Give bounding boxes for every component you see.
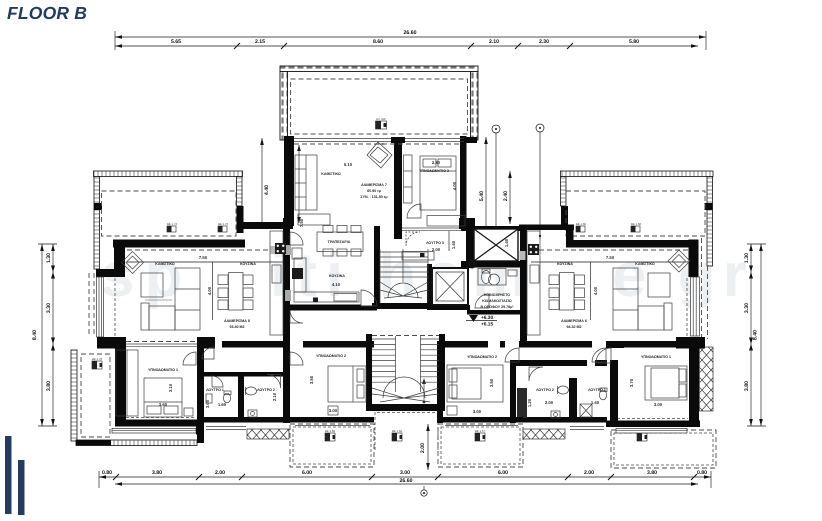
svg-text:4.00: 4.00 — [593, 286, 598, 295]
svg-text:3.10: 3.10 — [168, 383, 173, 392]
svg-text:ΥΠΝΟΔΩΜΑΤΙΟ 1: ΥΠΝΟΔΩΜΑΤΙΟ 1 — [148, 368, 178, 372]
svg-text:1.40: 1.40 — [504, 238, 509, 247]
svg-text:ΒΕ 1.68: ΒΕ 1.68 — [631, 222, 641, 226]
svg-text:2.00: 2.00 — [545, 400, 554, 405]
svg-text:6.00: 6.00 — [498, 470, 508, 476]
svg-text:4.40: 4.40 — [264, 185, 270, 195]
svg-text:3.80: 3.80 — [46, 381, 52, 391]
svg-text:ΣΥΝ. : 131.80 τμ: ΣΥΝ. : 131.80 τμ — [360, 195, 387, 199]
svg-text:7.50: 7.50 — [606, 255, 615, 260]
svg-text:ΚΑΘΙΣΤΙΚΟ: ΚΑΘΙΣΤΙΚΟ — [321, 172, 341, 176]
svg-text:3.50: 3.50 — [309, 375, 314, 384]
svg-text:8.40: 8.40 — [32, 330, 38, 340]
svg-text:ΒΕ 1.67: ΒΕ 1.67 — [475, 429, 485, 433]
svg-text:ΒΕ 1.78: ΒΕ 1.78 — [92, 357, 102, 361]
svg-text:0.80: 0.80 — [102, 470, 112, 476]
svg-text:1.30: 1.30 — [744, 253, 750, 263]
svg-text:4.00: 4.00 — [207, 286, 212, 295]
svg-text:ΒΕ 1.69: ΒΕ 1.69 — [392, 429, 402, 433]
svg-text:ΔΙΑΜΕΡΙΣΜΑ 7: ΔΙΑΜΕΡΙΣΜΑ 7 — [361, 183, 387, 187]
svg-text:FLOOR B: FLOOR B — [7, 3, 87, 23]
svg-text:1.20: 1.20 — [527, 398, 532, 407]
svg-text:ΚΛΙΜΑΚΟΣΤΑΣΙΟ: ΚΛΙΜΑΚΟΣΤΑΣΙΟ — [482, 299, 512, 303]
svg-text:5.80: 5.80 — [629, 39, 639, 45]
svg-text:7.50: 7.50 — [299, 218, 304, 227]
svg-text:3.00: 3.00 — [654, 402, 663, 407]
svg-text:ΚΑΘΙΣΤΙΚΟ: ΚΑΘΙΣΤΙΚΟ — [635, 262, 655, 266]
svg-text:3.70: 3.70 — [629, 378, 634, 387]
svg-text:6.00: 6.00 — [302, 470, 312, 476]
svg-text:65.90 τμ: 65.90 τμ — [367, 189, 381, 193]
svg-text:ΚΑΘΙΣΤΙΚΟ: ΚΑΘΙΣΤΙΚΟ — [155, 262, 175, 266]
svg-text:ΛΟΥΤΡΟ 1: ΛΟΥΤΡΟ 1 — [206, 388, 224, 392]
svg-text:8.40: 8.40 — [753, 330, 759, 340]
svg-text:3.00: 3.00 — [400, 470, 410, 476]
svg-text:2.10: 2.10 — [489, 39, 499, 45]
svg-text:ΥΠΝΟΔΩΜΑΤΙΟ 2: ΥΠΝΟΔΩΜΑΤΙΟ 2 — [316, 354, 346, 358]
svg-text:ΒΕ 1.73: ΒΕ 1.73 — [218, 222, 228, 226]
svg-text:8.00: 8.00 — [378, 142, 384, 146]
svg-text:Β ΟΡΟΦΟΥ 29.76μ²: Β ΟΡΟΦΟΥ 29.76μ² — [480, 305, 514, 309]
svg-text:ΔΙΑΜΕΡΙΣΜΑ 6: ΔΙΑΜΕΡΙΣΜΑ 6 — [561, 319, 587, 323]
svg-text:3.50: 3.50 — [489, 378, 494, 387]
svg-text:+6.30: +6.30 — [481, 315, 493, 321]
svg-text:1.40: 1.40 — [451, 240, 456, 249]
svg-text:3.00: 3.00 — [329, 408, 338, 413]
svg-text:ΚΟΥΖΙΝΑ: ΚΟΥΖΙΝΑ — [329, 274, 345, 278]
svg-text:ΒΕ 1.73: ΒΕ 1.73 — [167, 222, 177, 226]
svg-text:ΛΟΥΤΡΟ 2: ΛΟΥΤΡΟ 2 — [536, 388, 554, 392]
svg-text:2.15: 2.15 — [255, 39, 265, 45]
svg-text:2.40: 2.40 — [503, 191, 509, 201]
svg-text:26.60: 26.60 — [404, 30, 417, 36]
svg-text:ΥΠΝΟΔΩΜΑΤΙΟ 1: ΥΠΝΟΔΩΜΑΤΙΟ 1 — [641, 355, 671, 359]
svg-text:ΒΕ 1.66: ΒΕ 1.66 — [576, 222, 586, 226]
svg-text:5.65: 5.65 — [171, 39, 181, 45]
svg-text:3.80: 3.80 — [647, 470, 657, 476]
svg-text:5.40: 5.40 — [479, 191, 485, 201]
svg-text:94.32 Μ2: 94.32 Μ2 — [567, 325, 582, 329]
svg-text:3.30: 3.30 — [46, 303, 52, 313]
svg-text:93.40 Μ2: 93.40 Μ2 — [230, 325, 245, 329]
svg-text:7.50: 7.50 — [199, 255, 208, 260]
svg-text:+6.15: +6.15 — [481, 322, 493, 328]
svg-text:ΛΟΥΤΡΟ 2: ΛΟΥΤΡΟ 2 — [257, 388, 275, 392]
svg-text:5.10: 5.10 — [344, 162, 353, 167]
svg-text:8.60: 8.60 — [373, 39, 383, 45]
svg-text:3.80: 3.80 — [744, 381, 750, 391]
svg-text:ΔΙΑΜΕΡΙΣΜΑ 8: ΔΙΑΜΕΡΙΣΜΑ 8 — [224, 319, 250, 323]
svg-text:2.00: 2.00 — [420, 443, 426, 453]
svg-text:ΚΟΥΖΙΝΑ: ΚΟΥΖΙΝΑ — [557, 262, 573, 266]
svg-text:0.80: 0.80 — [697, 470, 707, 476]
svg-text:4.10: 4.10 — [332, 282, 341, 287]
svg-text:3.80: 3.80 — [152, 470, 162, 476]
svg-text:ΤΡΑΠΕΖΑΡΙΑ: ΤΡΑΠΕΖΑΡΙΑ — [328, 240, 351, 244]
svg-text:1.60: 1.60 — [218, 402, 227, 407]
svg-text:ΥΠΝΟΔΩΜΑΤΙΟ 2: ΥΠΝΟΔΩΜΑΤΙΟ 2 — [467, 355, 497, 359]
svg-text:ΛΟΥΤΡΟ 3: ΛΟΥΤΡΟ 3 — [426, 241, 444, 245]
svg-text:ΚΟΥΖΙΝΑ: ΚΟΥΖΙΝΑ — [240, 262, 256, 266]
svg-text:3.00: 3.00 — [473, 409, 482, 414]
svg-text:ΚΟΙΝΟΧΡΗΣΤΟ: ΚΟΙΝΟΧΡΗΣΤΟ — [484, 293, 510, 297]
svg-text:1.30: 1.30 — [46, 253, 52, 263]
svg-text:e gr: e gr — [612, 241, 754, 310]
svg-text:2.00: 2.00 — [584, 470, 594, 476]
svg-text:2.00: 2.00 — [215, 470, 225, 476]
svg-text:26.60: 26.60 — [400, 478, 413, 484]
svg-text:2.10: 2.10 — [272, 392, 277, 401]
svg-text:2.30: 2.30 — [539, 39, 549, 45]
svg-text:3.30: 3.30 — [744, 303, 750, 313]
svg-text:ΚΛ. ΜΡ: ΚΛ. ΜΡ — [376, 117, 386, 121]
svg-text:ΒΕ 1.69: ΒΕ 1.69 — [325, 429, 335, 433]
